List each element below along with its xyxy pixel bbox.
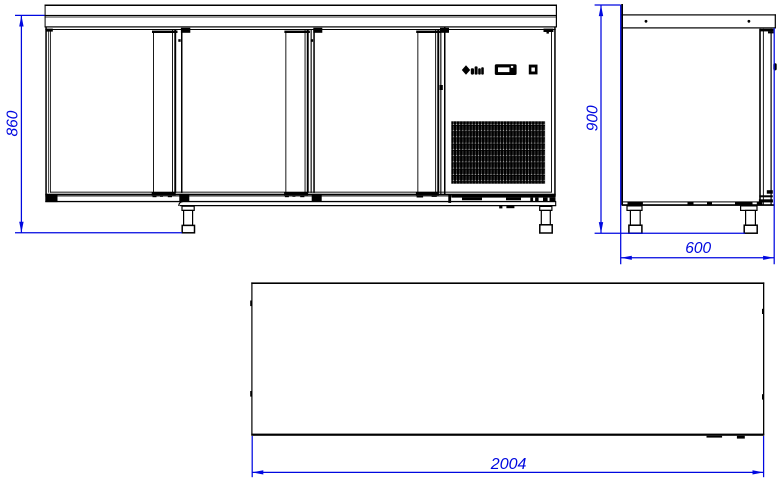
- svg-text:2004: 2004: [490, 456, 527, 473]
- svg-text:860: 860: [4, 110, 21, 136]
- svg-text:900: 900: [585, 105, 602, 131]
- svg-text:600: 600: [685, 240, 711, 257]
